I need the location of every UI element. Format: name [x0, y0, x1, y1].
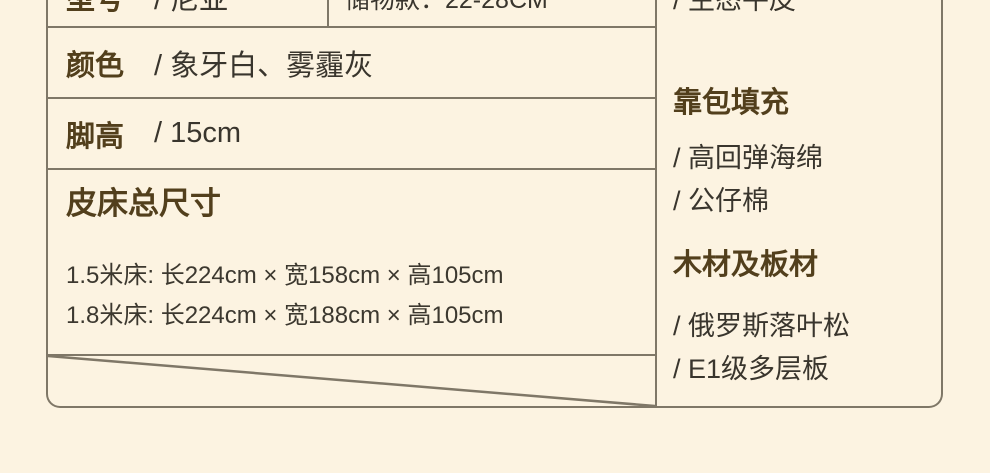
leather-material-item: / 生态牛皮 — [673, 0, 941, 14]
spec-table-right-section: / 生态牛皮 靠包填充 / 高回弹海绵 / 公仔棉 木材及板材 / 俄罗斯落叶松… — [657, 0, 941, 406]
cushion-filling-heading: 靠包填充 — [673, 88, 941, 118]
color-value: / 象牙白、雾霾灰 — [154, 42, 373, 84]
wood-item-plywood: / E1级多层板 — [673, 354, 941, 384]
row-leg-height: 脚高/ 15cm — [48, 97, 655, 168]
bed-dimension-1-5m: 1.5米床: 长224cm × 宽158cm × 高105cm — [66, 256, 655, 296]
wood-item-larch: / 俄罗斯落叶松 — [673, 311, 941, 341]
model-label: 型号 — [66, 0, 124, 16]
product-spec-sheet: 型号/ 尼亚 储物款：22-28CM 颜色/ 象牙白、雾霾灰 脚高/ 15cm … — [0, 0, 990, 473]
leg-height-label: 脚高 — [66, 113, 124, 155]
row-empty-diagonal — [48, 354, 655, 406]
model-cell: 型号/ 尼亚 — [48, 0, 327, 26]
row-model: 型号/ 尼亚 储物款：22-28CM — [48, 0, 655, 26]
color-label: 颜色 — [66, 42, 124, 84]
diagonal-slash-line — [48, 356, 655, 406]
wood-board-heading: 木材及板材 — [673, 250, 941, 280]
spec-table: 型号/ 尼亚 储物款：22-28CM 颜色/ 象牙白、雾霾灰 脚高/ 15cm … — [46, 0, 943, 408]
model-value: / 尼亚 — [154, 0, 228, 16]
leg-height-value: / 15cm — [154, 117, 241, 150]
bed-dimension-1-8m: 1.8米床: 长224cm × 宽188cm × 高105cm — [66, 296, 655, 336]
row-color: 颜色/ 象牙白、雾霾灰 — [48, 26, 655, 97]
row-bed-dimensions: 皮床总尺寸 1.5米床: 长224cm × 宽158cm × 高105cm 1.… — [48, 168, 655, 354]
storage-note-cell: 储物款：22-28CM — [327, 0, 655, 26]
bed-dimensions-heading: 皮床总尺寸 — [66, 188, 655, 220]
spec-table-left-section: 型号/ 尼亚 储物款：22-28CM 颜色/ 象牙白、雾霾灰 脚高/ 15cm … — [48, 0, 657, 406]
storage-note: 储物款：22-28CM — [345, 0, 548, 14]
cushion-filling-item-foam: / 高回弹海绵 — [673, 143, 941, 173]
cushion-filling-item-cotton: / 公仔棉 — [673, 186, 941, 216]
